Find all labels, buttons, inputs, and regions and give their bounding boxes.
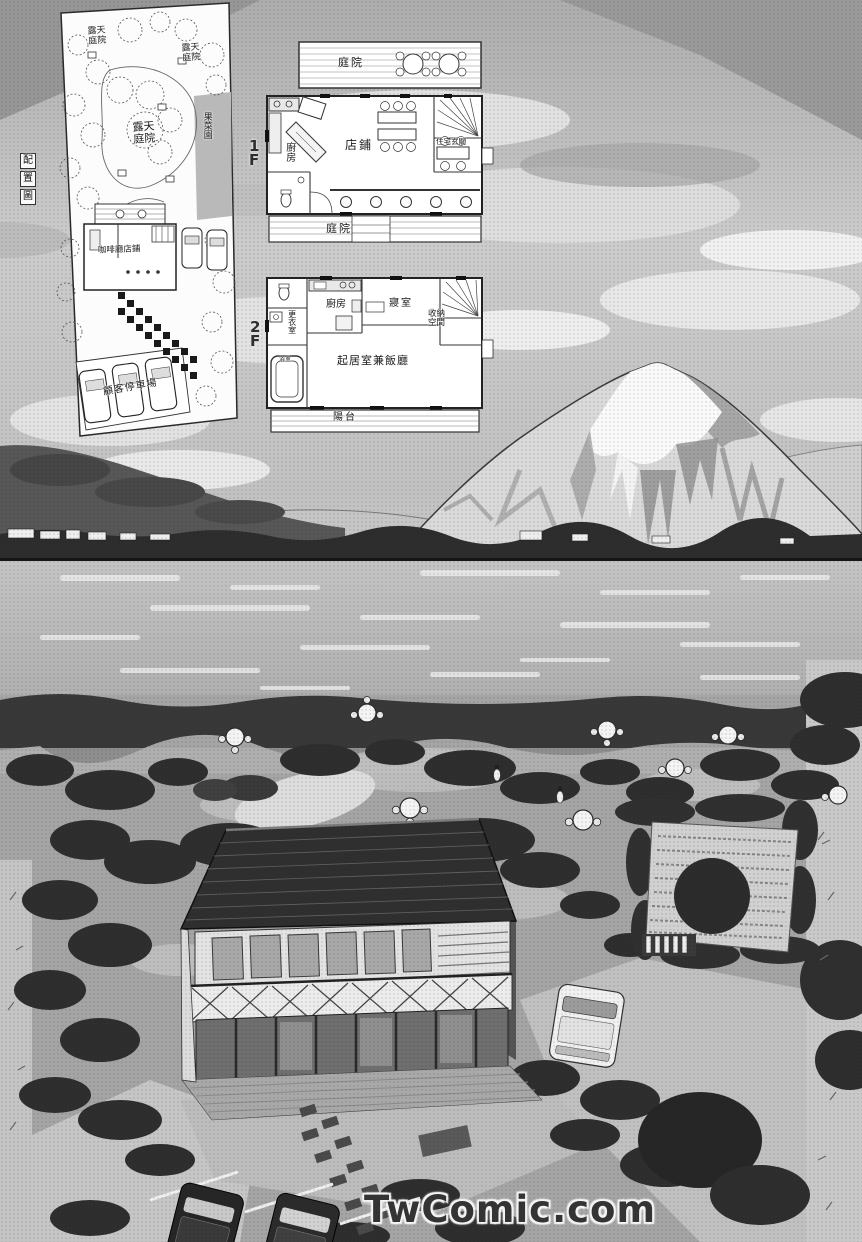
f2-balcony [271, 410, 479, 432]
f2-bedroom-label: 寢室 [389, 299, 413, 310]
f1-garden-top-label: 庭院 [338, 57, 364, 69]
f2-changing-room-label: 更衣室 [287, 310, 296, 350]
open-air-garden-label-2: 露天庭院 [181, 43, 202, 64]
f2-kitchen-label: 廚房 [326, 300, 346, 311]
cafe-shop-label: 咖啡廳店鋪 [98, 245, 141, 256]
site-plan-title: 配 置 圖 [20, 153, 36, 205]
manga-page: 配 置 圖 露天庭院 露天庭院 露天庭院 果菜園 咖啡廳店鋪 顧客停車場 1F … [0, 0, 862, 1242]
open-air-garden-label-3: 露天庭院 [132, 120, 160, 146]
f2-bed [366, 302, 384, 312]
floor2-tag: 2F [250, 320, 265, 349]
floor1-tag: 1F [249, 139, 264, 168]
f1-top-deck [299, 42, 481, 88]
f1-entrance-label: 住宅玄關 [436, 138, 466, 146]
f1-shop-label: 店鋪 [345, 139, 373, 152]
f1-kitchen-label: 廚房 [283, 142, 294, 174]
f1-garden-bottom-label: 庭院 [326, 223, 352, 235]
open-air-garden-label-1: 露天庭院 [87, 26, 110, 47]
f2-living-dining-label: 起居室兼飯廳 [337, 355, 409, 367]
f2-storage-label: 收納空間 [428, 310, 448, 328]
orchard-label: 果菜園 [201, 112, 211, 162]
f2-balcony-label: 陽台 [333, 413, 357, 424]
f1-bottom-deck [269, 216, 481, 242]
floor-plan-panels [0, 0, 862, 1242]
site-plan [57, 3, 237, 436]
watermark: TwComic.com [340, 1188, 680, 1231]
f2-bathroom-label: 浴室 [279, 357, 291, 363]
